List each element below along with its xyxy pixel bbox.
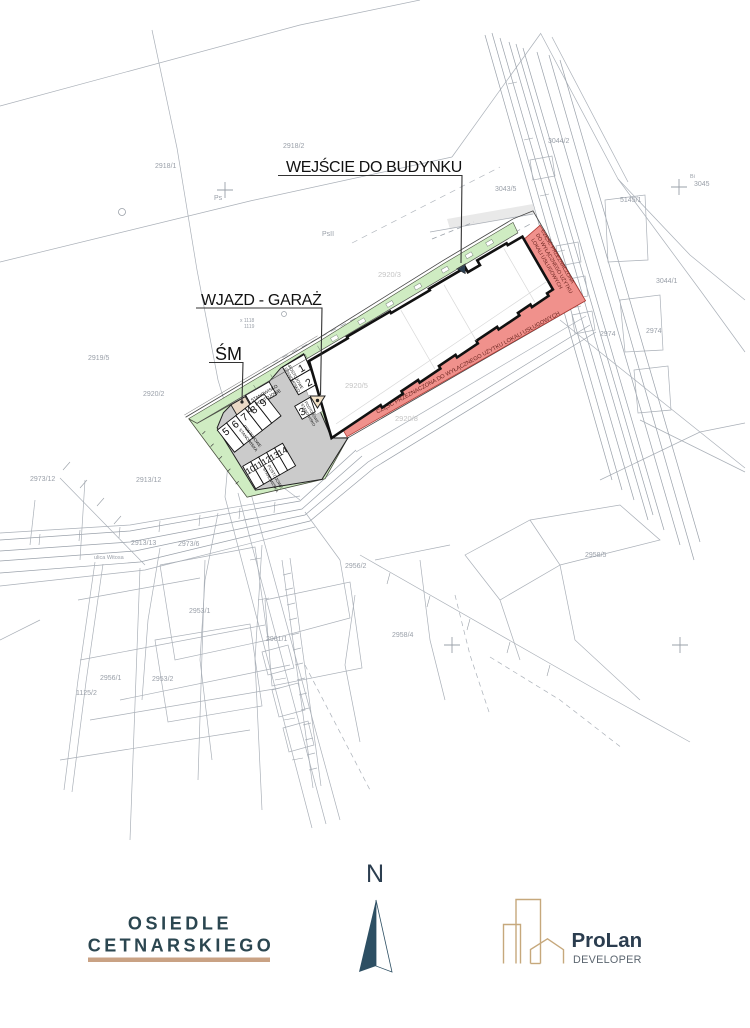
svg-text:3044/2: 3044/2 [548,138,570,145]
svg-text:2961/1: 2961/1 [266,636,288,643]
svg-text:2958/5: 2958/5 [585,552,607,559]
svg-text:Ps: Ps [214,195,223,202]
svg-text:ŚM: ŚM [215,343,242,364]
svg-text:1119: 1119 [244,324,255,330]
svg-text:2918/1: 2918/1 [155,163,177,170]
svg-text:N: N [366,860,384,888]
svg-text:2919/5: 2919/5 [88,355,110,362]
svg-text:DEVELOPER: DEVELOPER [573,954,642,966]
svg-text:2953/2: 2953/2 [152,676,174,683]
svg-text:2953/1: 2953/1 [189,608,211,615]
svg-text:3043/5: 3043/5 [495,186,517,193]
svg-text:2973/6: 2973/6 [178,541,200,548]
svg-text:Bi: Bi [690,174,695,180]
svg-text:2920/2: 2920/2 [143,391,165,398]
svg-text:2913/12: 2913/12 [136,477,161,484]
svg-text:WJAZD - GARAŻ: WJAZD - GARAŻ [201,290,322,309]
svg-text:3045: 3045 [694,181,710,188]
svg-text:2920/3: 2920/3 [378,270,401,279]
svg-text:2918/2: 2918/2 [283,143,305,150]
svg-text:2920/8: 2920/8 [395,414,418,423]
svg-text:5145/1: 5145/1 [620,197,642,204]
svg-text:2920/5: 2920/5 [345,381,368,390]
svg-text:PsII: PsII [322,231,334,238]
svg-text:1125/2: 1125/2 [76,690,97,697]
svg-text:ProLan: ProLan [572,929,643,952]
svg-text:CETNARSKIEGO: CETNARSKIEGO [88,936,274,956]
svg-text:ulica Witosa: ulica Witosa [94,555,125,561]
svg-text:2973/12: 2973/12 [30,476,55,483]
svg-text:2956/2: 2956/2 [345,563,367,570]
svg-text:2974: 2974 [646,328,662,335]
svg-text:OSIEDLE: OSIEDLE [128,914,232,934]
svg-text:3044/1: 3044/1 [656,278,678,285]
svg-text:2956/1: 2956/1 [100,675,122,682]
svg-text:WEJŚCIE DO BUDYNKU: WEJŚCIE DO BUDYNKU [286,157,462,176]
svg-text:2958/4: 2958/4 [392,632,414,639]
svg-text:2913/13: 2913/13 [131,540,156,547]
svg-text:2974: 2974 [600,331,616,338]
